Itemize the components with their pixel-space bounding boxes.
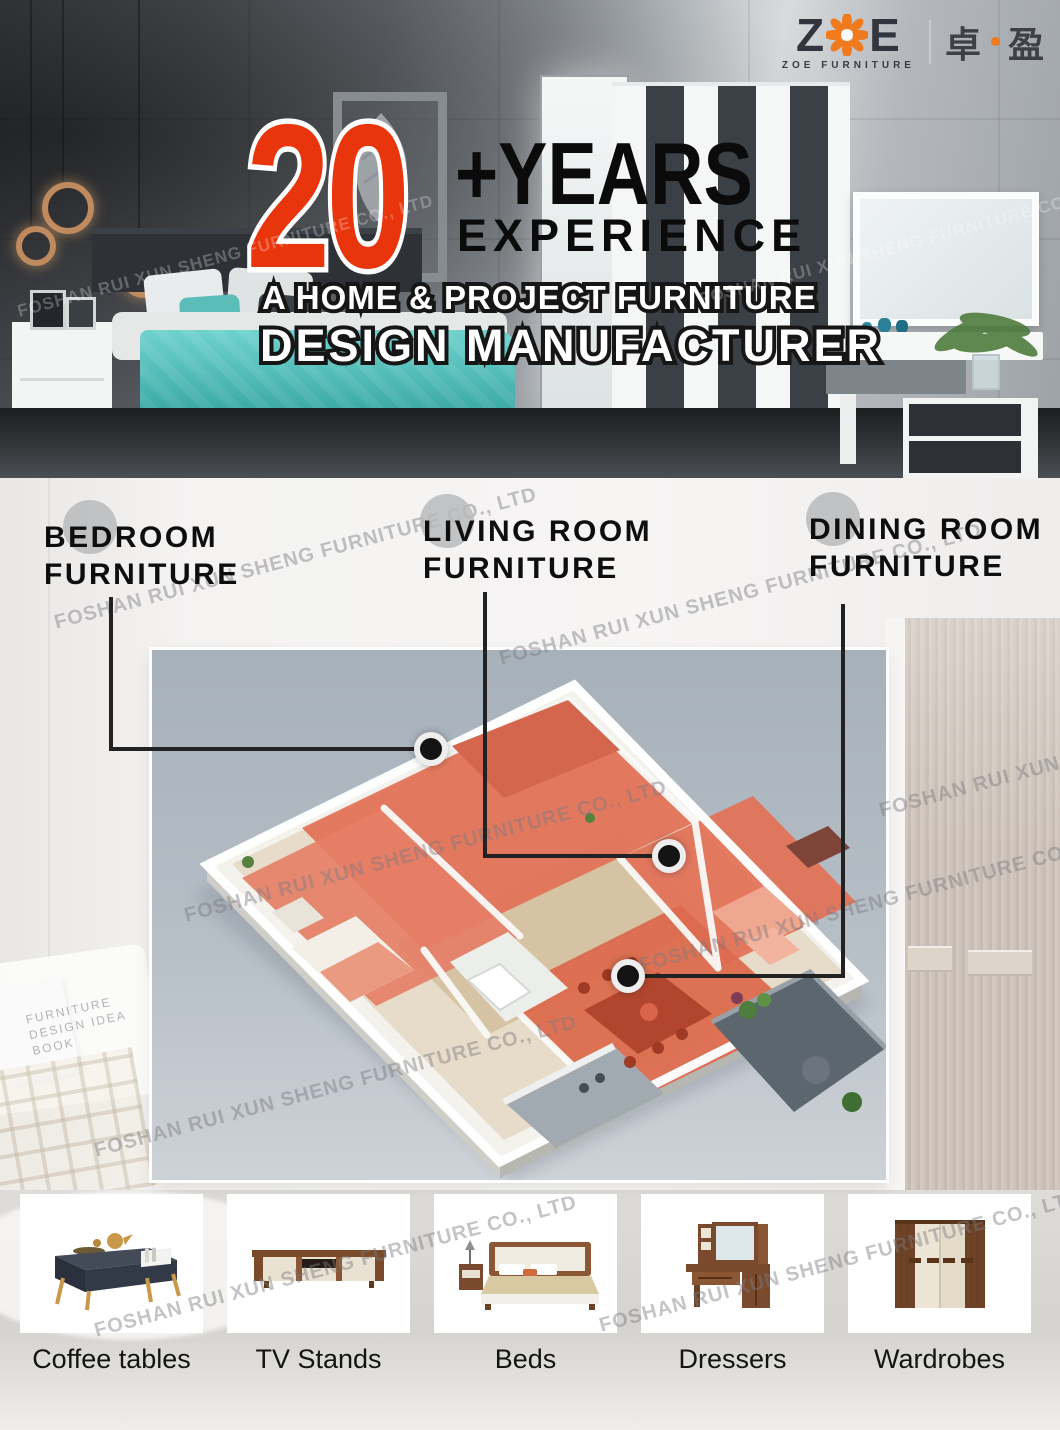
- plus-years-text: +YEARS: [455, 130, 753, 218]
- category-label-living-room: LIVING ROOM FURNITURE: [423, 513, 652, 587]
- experience-text: EXPERIENCE: [457, 213, 807, 258]
- chest-drawer: [909, 404, 1021, 436]
- logo-subtext: ZOE FURNITURE: [782, 60, 915, 71]
- connector-line-dining: [628, 974, 845, 978]
- years-number: 20 20: [246, 94, 406, 299]
- connector-line-living: [483, 592, 487, 858]
- product-label-tv-stands: TV Stands: [227, 1344, 410, 1375]
- living-room-marker-dot: [652, 839, 686, 873]
- wardrobe-handle: [968, 950, 1032, 976]
- logo-divider: [929, 20, 931, 64]
- dining-room-marker-dot: [611, 959, 645, 993]
- product-label-dressers: Dressers: [641, 1344, 824, 1375]
- wardrobe-handle: [908, 946, 952, 972]
- pendant-cord: [138, 0, 140, 250]
- dark-wood-floor: [0, 408, 1060, 478]
- logo-letter-e: E: [869, 12, 901, 58]
- ring-pendant-light: [42, 182, 94, 234]
- logo-cn-right: 盈: [1008, 16, 1046, 68]
- pendant-cord: [30, 0, 32, 226]
- logo-cn-left: 卓: [945, 16, 983, 68]
- tagline-line2: DESIGN MANUFACTURER DESIGN MANUFACTURER: [260, 323, 882, 368]
- wood-wardrobe-background: [905, 618, 1060, 1190]
- bedroom-marker-dot: [414, 732, 448, 766]
- logo-chinese: 卓 盈: [945, 16, 1046, 68]
- category-label-dining-room: DINING ROOM FURNITURE: [809, 511, 1043, 585]
- coffee-table-image: [37, 1214, 187, 1314]
- chest-drawer: [909, 441, 1021, 473]
- dressing-table-leg: [840, 394, 856, 464]
- brand-logo: Z E: [782, 12, 1046, 71]
- zoe-logo: Z E: [782, 12, 915, 71]
- category-label-bedroom: BEDROOM FURNITURE: [44, 519, 240, 593]
- product-label-beds: Beds: [434, 1344, 617, 1375]
- flower-icon: [826, 14, 868, 56]
- pendant-cord: [62, 0, 64, 182]
- connector-line-living: [483, 854, 673, 858]
- connector-line-bedroom: [109, 597, 113, 749]
- product-label-wardrobes: Wardrobes: [848, 1344, 1031, 1375]
- logo-dot-icon: [991, 37, 1000, 46]
- ring-pendant-light: [16, 226, 56, 266]
- furniture-promo-poster: Z E: [0, 0, 1060, 1430]
- connector-line-bedroom: [109, 747, 435, 751]
- connector-line-dining: [841, 604, 845, 978]
- product-label-coffee-tables: Coffee tables: [20, 1344, 203, 1375]
- logo-letter-z: Z: [796, 12, 825, 58]
- fern-plant: [925, 295, 1055, 400]
